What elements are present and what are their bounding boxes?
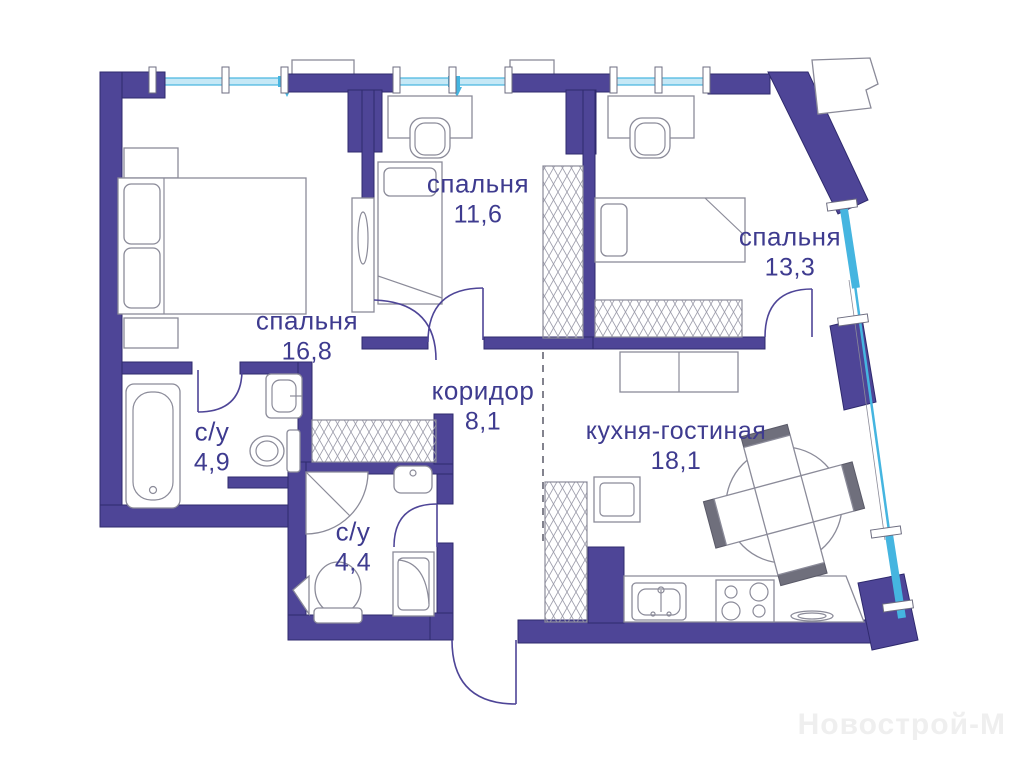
nightstand	[124, 148, 178, 178]
wall-bath2-right-upper	[437, 474, 453, 504]
pillow	[601, 204, 627, 256]
wall-corridor-top-b	[484, 337, 595, 349]
desk-chair	[410, 118, 450, 158]
window-mullion	[222, 67, 229, 93]
top-windows	[160, 76, 708, 97]
window-mullion	[449, 67, 456, 93]
corridor-wardrobe	[312, 420, 436, 462]
wall-corridor-top-a	[362, 337, 428, 349]
wardrobe	[595, 300, 742, 337]
floor-plan: спальня 11,6 спальня 13,3 спальня 16,8 к…	[0, 0, 1024, 768]
pillow	[384, 168, 436, 196]
wall-kitchen-bottom	[518, 620, 902, 643]
door-arc-bedroom3	[374, 300, 436, 360]
nightstand	[124, 318, 178, 348]
window-mullion	[838, 314, 869, 326]
wall-bedroom1-bedroom2	[583, 90, 595, 349]
wall-bath1-bottom	[100, 505, 296, 527]
door-arc-bathroom1	[198, 370, 242, 412]
window-segment	[843, 203, 856, 288]
wardrobe	[543, 166, 583, 338]
wardrobe-mirror	[352, 198, 374, 312]
pillow	[124, 248, 160, 308]
wall-entrance-bottom	[288, 615, 448, 640]
window-mullion	[610, 67, 617, 93]
toilet-bowl	[315, 562, 361, 614]
wall-bedroom2-kitchen	[593, 337, 765, 349]
wall-top-pier	[288, 74, 398, 92]
wall-bath1-top-a	[122, 362, 192, 374]
window-mullion	[505, 67, 512, 93]
desk-chair	[630, 118, 670, 158]
wall-top-pier	[510, 74, 614, 92]
wall-top-pier	[708, 74, 770, 94]
tall-wardrobe	[545, 482, 587, 622]
wall-right-pillar	[830, 318, 876, 410]
window-mullion	[655, 67, 662, 93]
window-mullion	[393, 67, 400, 93]
window-mullion	[703, 67, 710, 93]
wall-bath2-left	[288, 462, 306, 640]
toilet-tank	[314, 608, 362, 623]
toilet-tank	[287, 430, 300, 472]
balcony-outline	[812, 58, 878, 114]
window-mullion	[871, 526, 902, 538]
wall-closet-post	[434, 414, 453, 464]
door-arc-bedroom2	[765, 289, 812, 337]
wall-block	[430, 613, 453, 640]
door-arc-bathroom2	[394, 504, 437, 547]
wall-bath2-right-lower	[437, 543, 453, 623]
window-mullion	[149, 67, 156, 93]
wall-hall-kitchen	[588, 547, 624, 623]
washing-machine	[393, 552, 434, 616]
pillow	[124, 184, 160, 244]
furniture	[118, 96, 865, 623]
floor-plan-drawing	[0, 0, 1024, 768]
window-mullion	[281, 67, 288, 93]
right-windows	[827, 199, 914, 618]
door-arc-entrance	[452, 640, 516, 704]
watermark: Новострой-М	[798, 708, 1006, 742]
